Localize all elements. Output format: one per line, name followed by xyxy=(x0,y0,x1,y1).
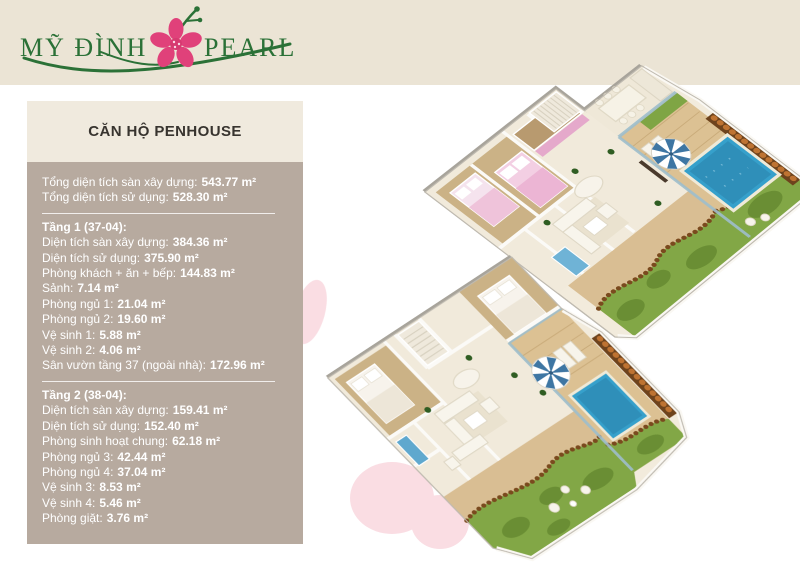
spec-value: 384.36 m² xyxy=(173,235,228,249)
spec-value: 172.96 m² xyxy=(210,358,265,372)
spec-label: Vệ sinh 3: xyxy=(42,480,95,494)
spec-row: Diện tích sử dụng:152.40 m² xyxy=(42,419,293,434)
spec-label: Vệ sinh 4: xyxy=(42,496,95,510)
spec-label: Tổng diện tích sử dụng: xyxy=(42,190,169,204)
spec-label: Phòng sinh hoạt chung: xyxy=(42,434,168,448)
spec-label: Tổng diện tích sàn xây dựng: xyxy=(42,175,197,189)
spec-value: 3.76 m² xyxy=(107,511,148,525)
spec-value: 4.06 m² xyxy=(99,343,140,357)
spec-row: Phòng ngủ 3:42.44 m² xyxy=(42,450,293,465)
spec-label: Phòng ngủ 1: xyxy=(42,297,113,311)
spec-label: Vệ sinh 2: xyxy=(42,343,95,357)
spec-row: Vệ sinh 1:5.88 m² xyxy=(42,328,293,343)
floor-1-specs: Tầng 1 (37-04):Diện tích sàn xây dựng:38… xyxy=(42,220,293,374)
spec-row: Phòng sinh hoạt chung:62.18 m² xyxy=(42,434,293,449)
spec-label: Phòng ngủ 2: xyxy=(42,312,113,326)
spec-value: 543.77 m² xyxy=(201,175,256,189)
spec-row: Diện tích sàn xây dựng:384.36 m² xyxy=(42,235,293,250)
spec-value: 528.30 m² xyxy=(173,190,228,204)
spec-value: 37.04 m² xyxy=(117,465,165,479)
floor-header: Tầng 1 (37-04): xyxy=(42,220,293,235)
floor-header: Tầng 2 (38-04): xyxy=(42,388,293,403)
spec-label: Sảnh: xyxy=(42,281,73,295)
spec-value: 375.90 m² xyxy=(144,251,199,265)
spec-label: Sân vườn tầng 37 (ngoài nhà): xyxy=(42,358,206,372)
spec-label: Phòng ngủ 4: xyxy=(42,465,113,479)
spec-row: Phòng ngủ 4:37.04 m² xyxy=(42,465,293,480)
spec-label: Phòng giặt: xyxy=(42,511,103,525)
spec-label: Diện tích sàn xây dựng: xyxy=(42,235,169,249)
spec-value: 42.44 m² xyxy=(117,450,165,464)
spec-row: Sảnh:7.14 m² xyxy=(42,281,293,296)
spec-value: 7.14 m² xyxy=(77,281,118,295)
spec-value: 8.53 m² xyxy=(99,480,140,494)
spec-row: Phòng ngủ 1:21.04 m² xyxy=(42,297,293,312)
apartment-info-panel: CĂN HỘ PENHOUSE Tổng diện tích sàn xây d… xyxy=(27,101,303,544)
page: MỸ ĐÌNH PEARL xyxy=(0,0,800,565)
panel-body: Tổng diện tích sàn xây dựng:543.77 m²Tổn… xyxy=(27,162,303,544)
floor-2-specs: Tầng 2 (38-04):Diện tích sàn xây dựng:15… xyxy=(42,388,293,527)
spec-row: Vệ sinh 3:8.53 m² xyxy=(42,480,293,495)
spec-row: Diện tích sử dụng:375.90 m² xyxy=(42,251,293,266)
summary-rows: Tổng diện tích sàn xây dựng:543.77 m²Tổn… xyxy=(42,175,293,206)
spec-label: Diện tích sử dụng: xyxy=(42,251,140,265)
spec-value: 144.83 m² xyxy=(180,266,235,280)
spec-label: Phòng khách + ăn + bếp: xyxy=(42,266,176,280)
spec-row: Phòng khách + ăn + bếp:144.83 m² xyxy=(42,266,293,281)
spec-row: Diện tích sàn xây dựng:159.41 m² xyxy=(42,403,293,418)
spec-row: Tổng diện tích sàn xây dựng:543.77 m² xyxy=(42,175,293,190)
spec-row: Sân vườn tầng 37 (ngoài nhà):172.96 m² xyxy=(42,358,293,373)
spec-label: Vệ sinh 1: xyxy=(42,328,95,342)
panel-title: CĂN HỘ PENHOUSE xyxy=(27,101,303,162)
spec-row: Phòng ngủ 2:19.60 m² xyxy=(42,312,293,327)
divider xyxy=(42,381,275,382)
spec-value: 62.18 m² xyxy=(172,434,220,448)
spec-value: 5.88 m² xyxy=(99,328,140,342)
spec-value: 159.41 m² xyxy=(173,403,228,417)
spec-row: Tổng diện tích sử dụng:528.30 m² xyxy=(42,190,293,205)
spec-value: 5.46 m² xyxy=(99,496,140,510)
spec-value: 21.04 m² xyxy=(117,297,165,311)
spec-label: Diện tích sàn xây dựng: xyxy=(42,403,169,417)
spec-row: Vệ sinh 2:4.06 m² xyxy=(42,343,293,358)
spec-label: Phòng ngủ 3: xyxy=(42,450,113,464)
spec-value: 152.40 m² xyxy=(144,419,199,433)
spec-label: Diện tích sử dụng: xyxy=(42,419,140,433)
spec-value: 19.60 m² xyxy=(117,312,165,326)
spec-row: Vệ sinh 4:5.46 m² xyxy=(42,496,293,511)
spec-row: Phòng giặt:3.76 m² xyxy=(42,511,293,526)
divider xyxy=(42,213,275,214)
